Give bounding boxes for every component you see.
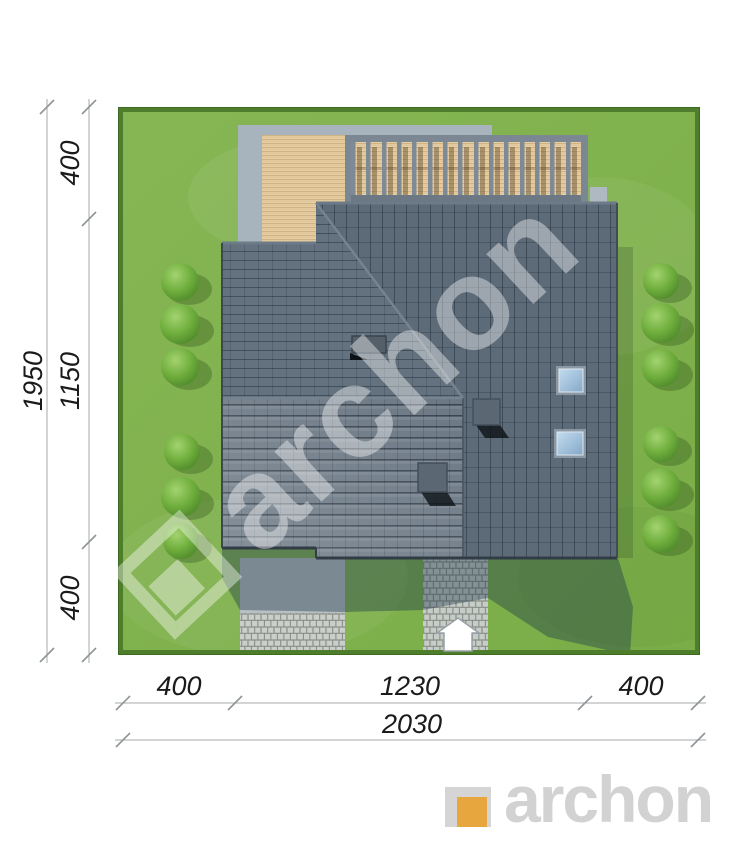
small-pad (590, 187, 607, 203)
house-roof (222, 203, 617, 558)
site-plan-drawing (118, 107, 700, 655)
pergola-slats (351, 140, 571, 198)
archon-logo-text: archon (504, 770, 724, 832)
dim-bottom-segment-middle: 1230 (350, 672, 470, 700)
archon-logo-orange-square-icon (457, 797, 487, 827)
dim-left-segment-bottom: 400 (56, 538, 84, 658)
plot-area: archon (118, 107, 700, 655)
dim-left-segment-middle: 1150 (56, 321, 84, 441)
roof-east-edge-shadow (617, 247, 633, 558)
dim-left-total: 1950 (19, 321, 47, 441)
skylight (556, 366, 586, 395)
dim-left-segment-top: 400 (56, 103, 84, 223)
site-plan-page: archon 1950 400 1150 400 400 1 (0, 0, 734, 854)
dim-bottom-total: 2030 (352, 710, 472, 738)
dim-bottom-segment-left: 400 (139, 672, 219, 700)
dim-bottom-segment-right: 400 (601, 672, 681, 700)
skylight (554, 429, 586, 458)
